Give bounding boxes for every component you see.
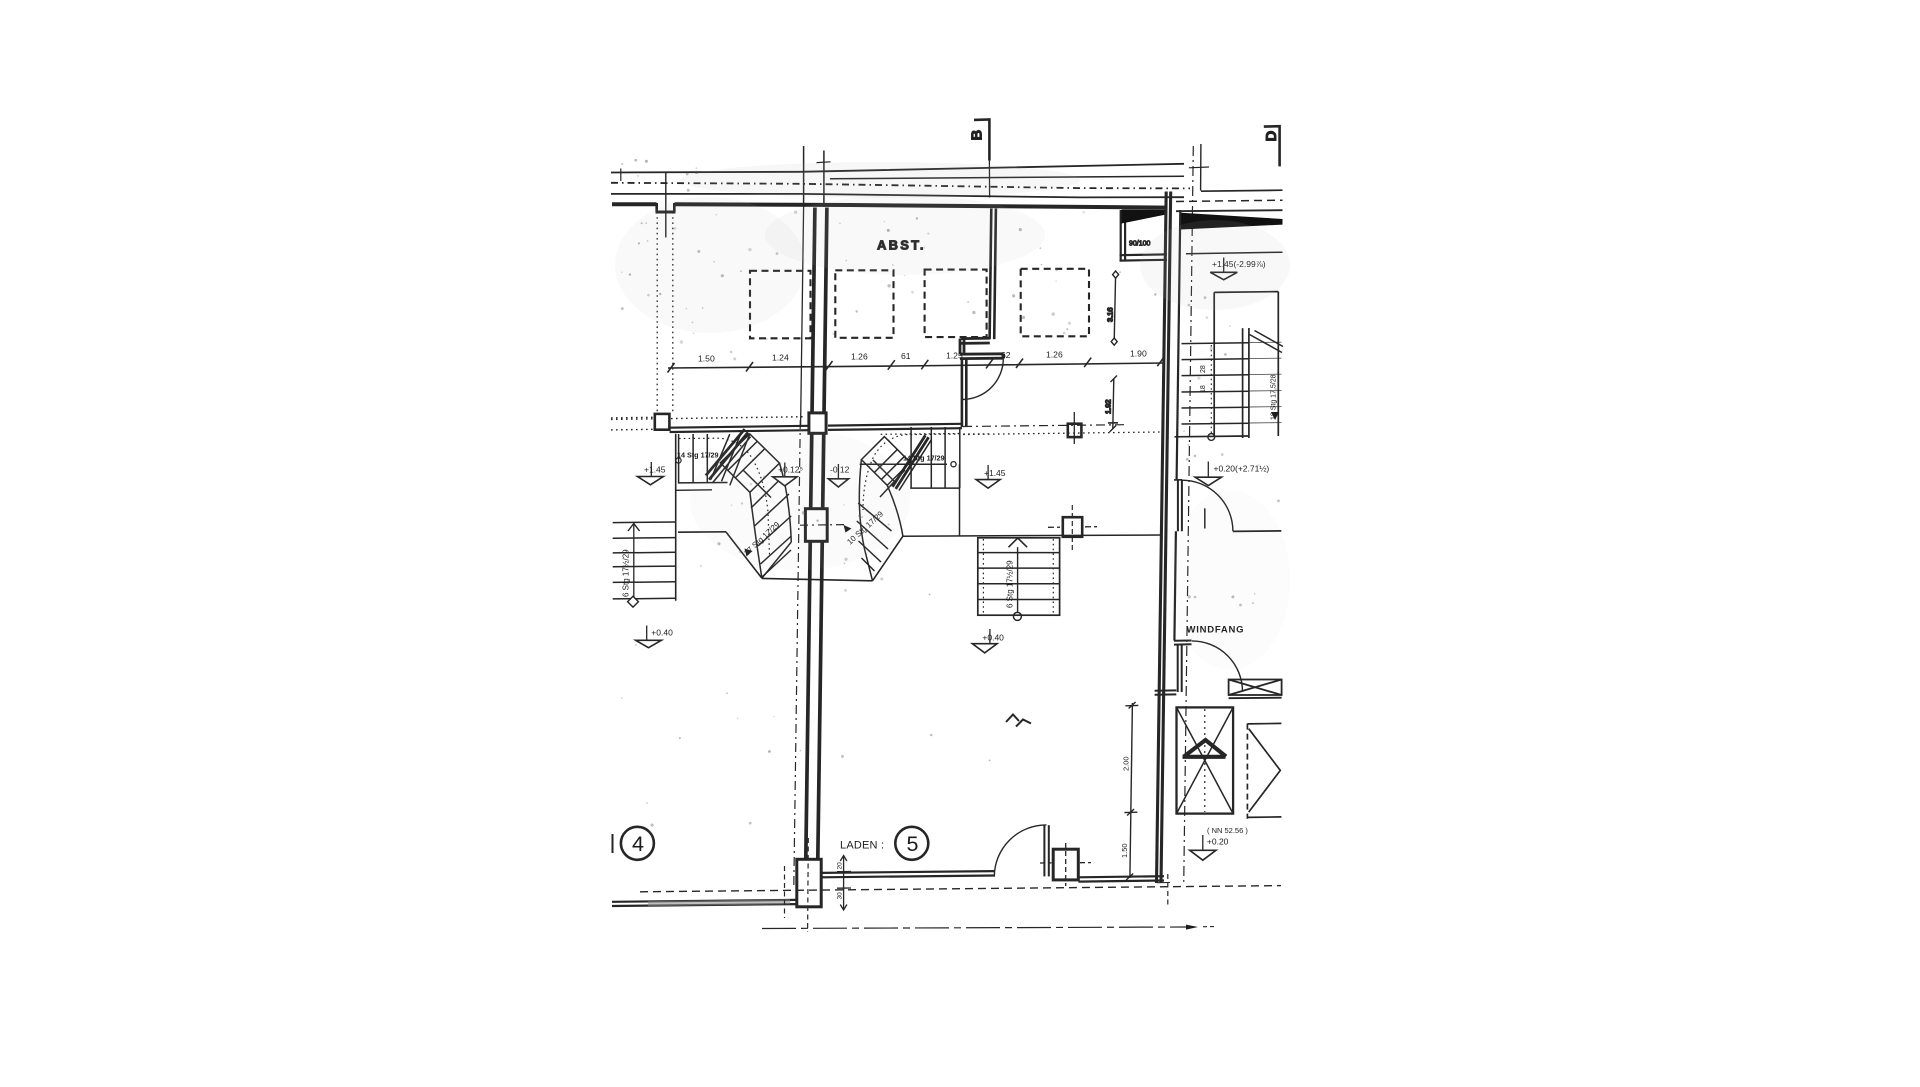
svg-text:+1.45: +1.45 [984, 468, 1006, 478]
svg-text:18: 18 [1200, 385, 1207, 393]
svg-text:1.26: 1.26 [1046, 350, 1063, 360]
svg-text:4: 4 [632, 832, 644, 856]
svg-text:1.90: 1.90 [1130, 349, 1147, 359]
svg-text:LADEN :: LADEN : [840, 840, 884, 852]
svg-text:20: 20 [837, 862, 844, 870]
svg-text:+0.20: +0.20 [1207, 837, 1229, 847]
svg-text:28: 28 [1200, 365, 1207, 373]
svg-text:61: 61 [901, 351, 911, 361]
svg-text:1.24: 1.24 [772, 353, 789, 363]
svg-text:2.00: 2.00 [1122, 756, 1131, 771]
svg-text:+0.20(+2.71½): +0.20(+2.71½) [1214, 464, 1270, 474]
svg-text:( NN 52.56 ): ( NN 52.56 ) [1207, 826, 1248, 835]
svg-text:1.50: 1.50 [698, 354, 715, 364]
svg-text:6 Stg 17½/29: 6 Stg 17½/29 [622, 549, 631, 597]
svg-text:3.16: 3.16 [1106, 307, 1115, 322]
svg-text:30: 30 [837, 892, 844, 900]
svg-text:1.26: 1.26 [851, 352, 868, 362]
svg-text:1.92: 1.92 [1104, 399, 1113, 414]
svg-text:+0.40: +0.40 [982, 633, 1004, 643]
svg-text:1.25: 1.25 [946, 351, 963, 361]
svg-text:+1.45: +1.45 [644, 465, 666, 475]
svg-text:1.50: 1.50 [1120, 843, 1129, 858]
svg-text:D: D [1263, 131, 1280, 142]
svg-text:+0.40: +0.40 [651, 628, 673, 638]
svg-text:B: B [969, 130, 986, 141]
svg-text:6 Stg 17½/29: 6 Stg 17½/29 [1006, 560, 1015, 608]
svg-text:14 Stg 17/29: 14 Stg 17/29 [903, 454, 945, 463]
svg-text:5: 5 [907, 832, 919, 856]
svg-text:62: 62 [1001, 350, 1011, 360]
